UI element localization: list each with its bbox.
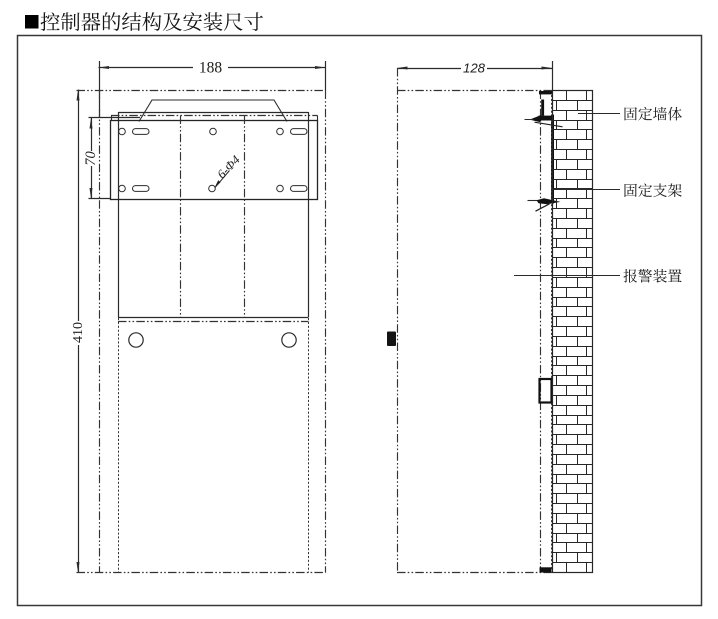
- svg-text:410: 410: [71, 322, 86, 343]
- svg-text:70: 70: [83, 151, 99, 166]
- svg-text:188: 188: [199, 60, 223, 77]
- svg-text:128: 128: [463, 60, 486, 75]
